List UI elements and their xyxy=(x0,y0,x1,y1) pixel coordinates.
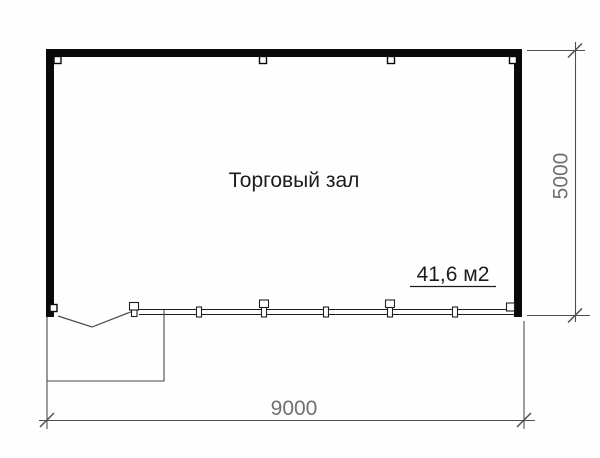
floor-plan-canvas: 9000 5000 Торговый зал 41,6 м2 xyxy=(0,0,600,458)
room-label: Торговый зал xyxy=(229,169,360,192)
post-cap xyxy=(386,300,395,308)
height-dimension-label: 5000 xyxy=(550,153,573,200)
door-swing-line xyxy=(58,311,133,327)
mullion xyxy=(388,307,393,317)
door-post-body xyxy=(132,310,138,317)
left-wall xyxy=(46,49,54,317)
post-marker xyxy=(260,57,267,64)
mullion xyxy=(262,307,267,317)
mullion xyxy=(197,307,202,317)
post-marker xyxy=(510,57,517,64)
mullion xyxy=(453,307,458,317)
right-wall xyxy=(514,49,522,317)
post-cap xyxy=(260,300,269,308)
porch-outline xyxy=(47,310,164,381)
mullion xyxy=(324,307,329,317)
storefront-glazing xyxy=(139,300,515,317)
post-marker xyxy=(388,57,395,64)
post-marker xyxy=(54,57,61,64)
floor-plan-drawing: 9000 5000 Торговый зал 41,6 м2 xyxy=(0,0,600,458)
width-dimension-label: 9000 xyxy=(271,397,318,420)
door-post-cap xyxy=(130,303,139,311)
end-post xyxy=(507,303,515,311)
post-marker xyxy=(50,305,57,312)
door-post xyxy=(130,303,139,317)
area-label: 41,6 м2 xyxy=(417,263,490,286)
top-wall xyxy=(46,49,522,57)
